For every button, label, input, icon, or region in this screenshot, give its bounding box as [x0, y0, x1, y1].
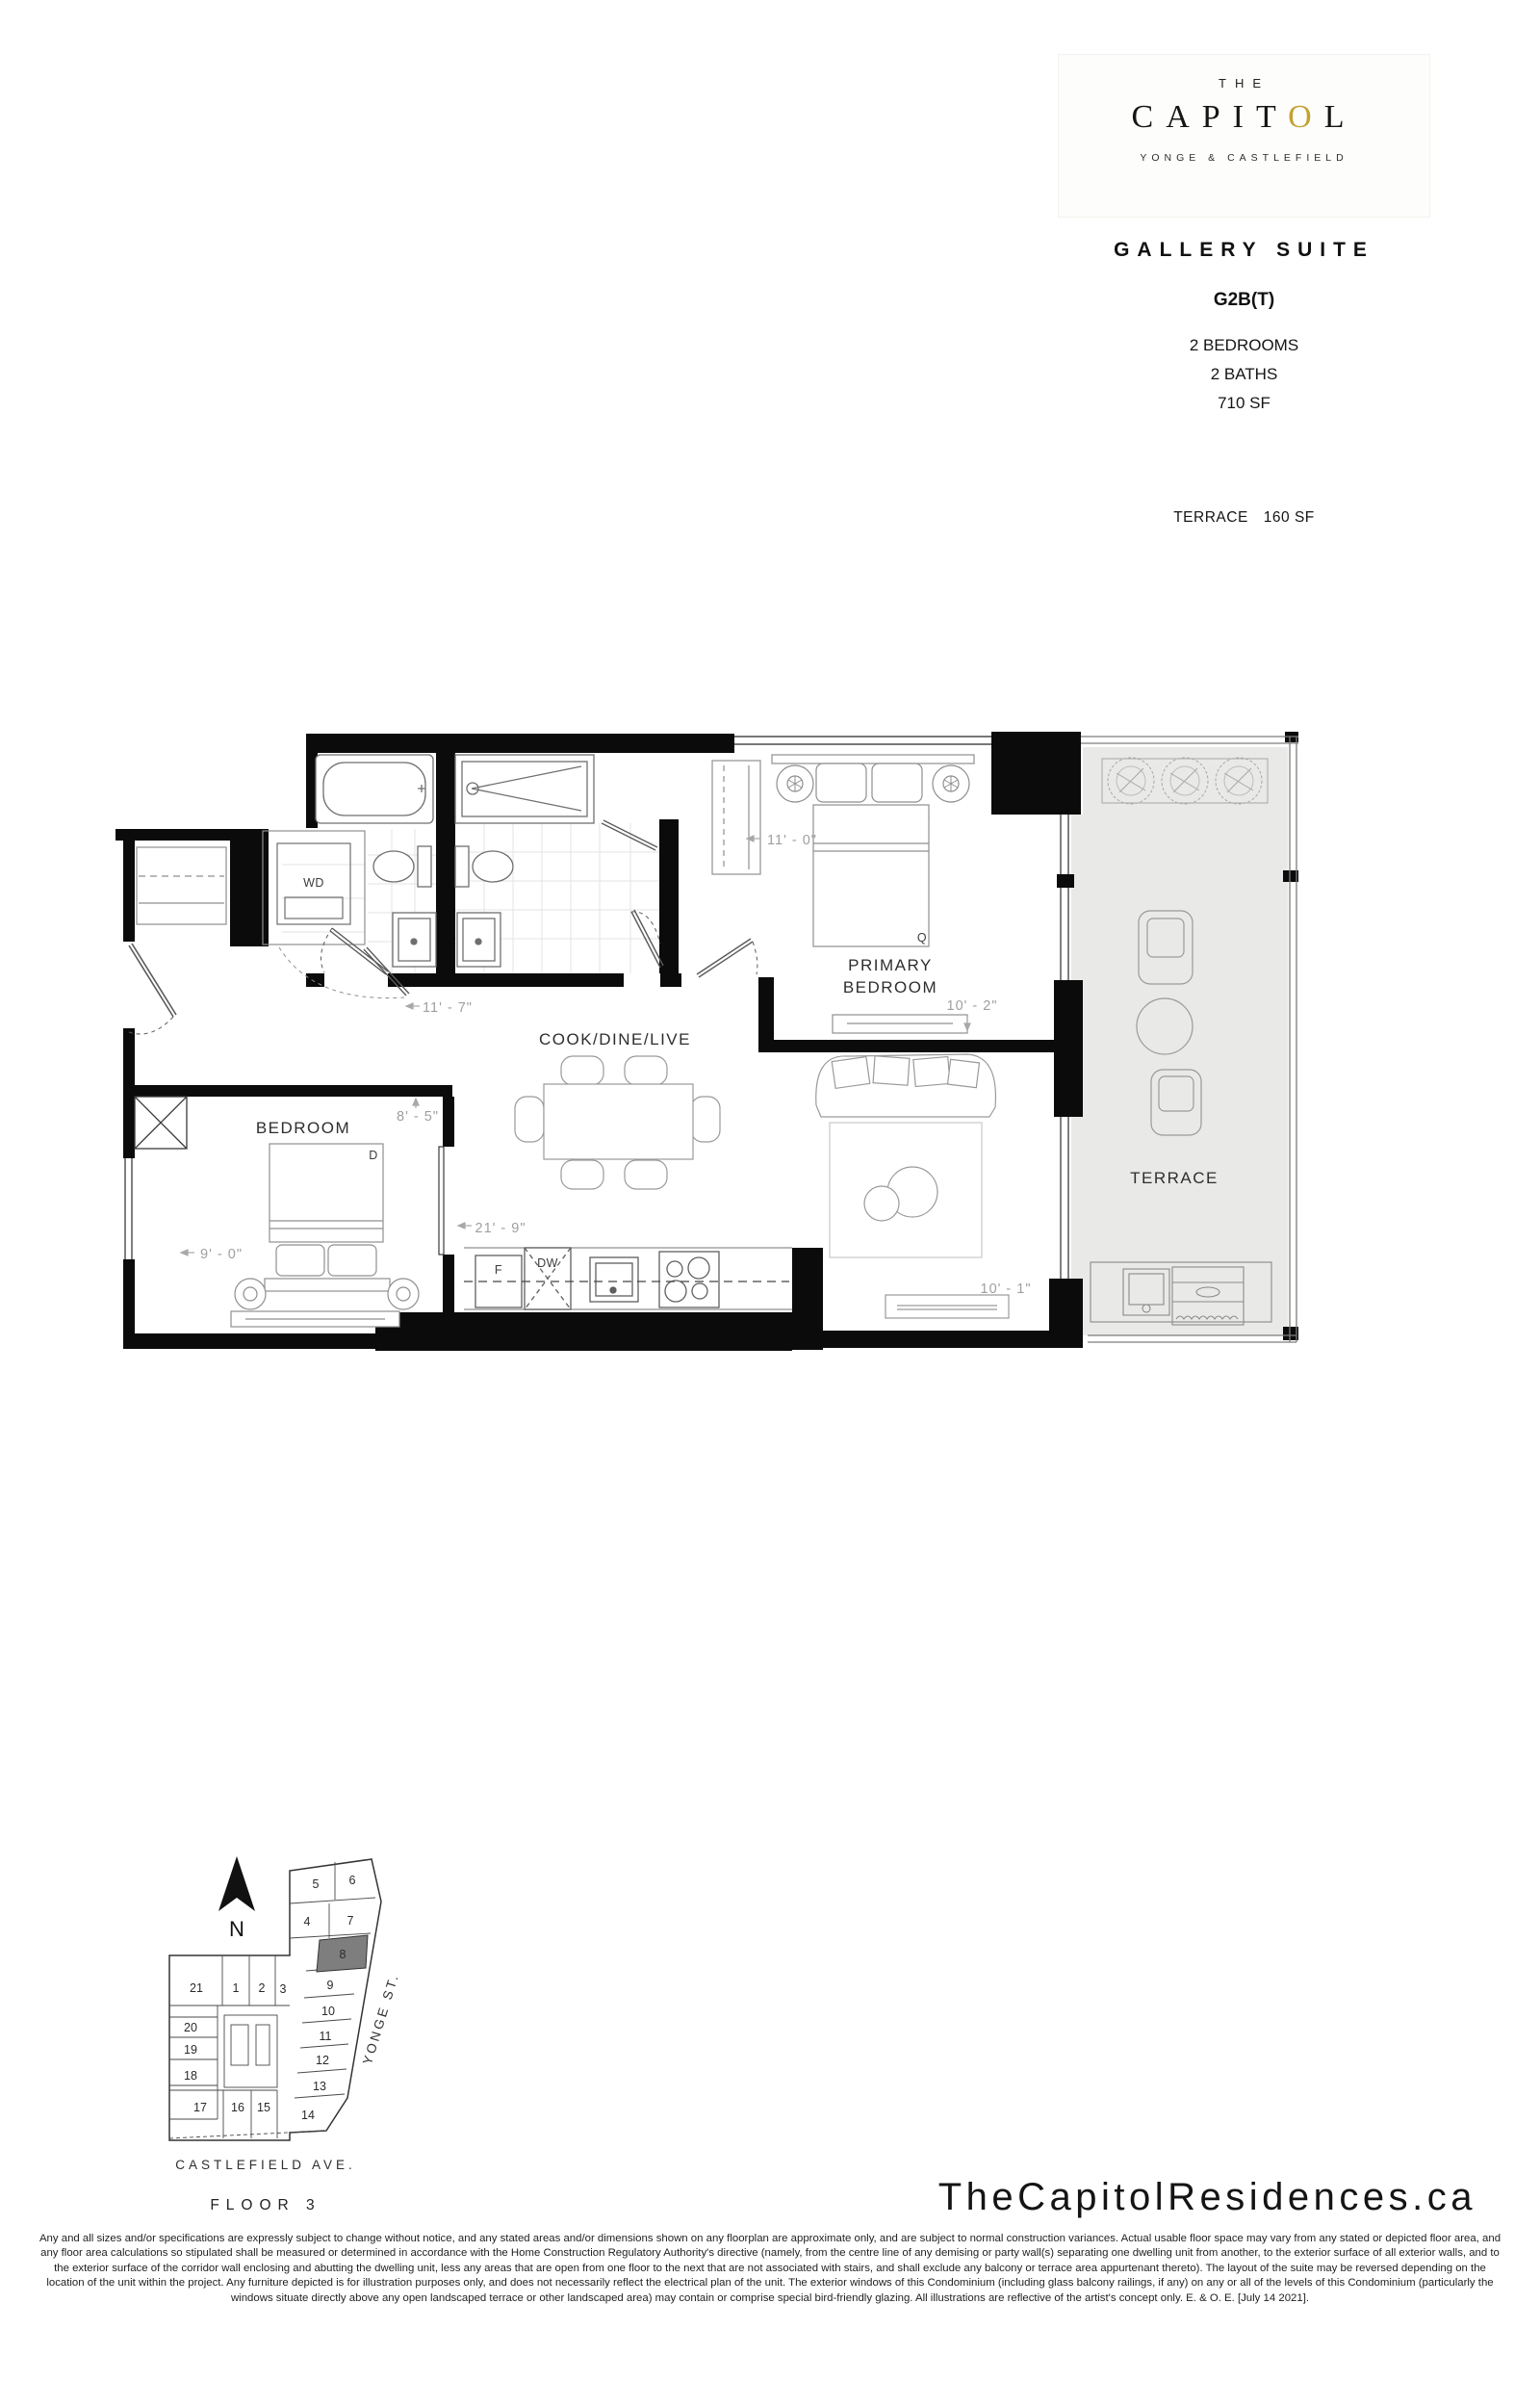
key-plan: N 5 6 4 7 8 9 10 11 12 13: [123, 1832, 454, 2221]
primary-bedroom-label-1: PRIMARY: [848, 956, 933, 974]
brand-wordmark-left: CAPIT: [1132, 99, 1289, 135]
terrace-floor: [1071, 747, 1288, 1335]
bedroom-label: BEDROOM: [256, 1119, 350, 1137]
toilet-icon-bath1: [373, 846, 431, 887]
legal-disclaimer: Any and all sizes and/or specifications …: [37, 2232, 1503, 2306]
unit-number: 19: [184, 2043, 197, 2057]
unit-number: 18: [184, 2069, 197, 2083]
terrace-room-label: TERRACE: [1130, 1169, 1219, 1187]
unit-number: 5: [313, 1877, 320, 1891]
unit-number: 20: [184, 2021, 197, 2034]
primary-bedroom-label-2: BEDROOM: [843, 978, 937, 996]
unit-number-highlighted: 8: [340, 1948, 346, 1961]
unit-number: 10: [321, 2005, 335, 2018]
suite-area: 710 SF: [1059, 389, 1429, 418]
unit-number: 2: [259, 1981, 266, 1995]
terrace-label: TERRACE: [1173, 509, 1248, 526]
dining-set-icon: [515, 1056, 720, 1189]
primary-closet: [712, 761, 760, 874]
suite-baths: 2 BATHS: [1059, 360, 1429, 389]
dim-bedroom-depth: 9' - 0": [200, 1247, 243, 1262]
entry-door: [129, 944, 176, 1034]
bedroom-sliding-door: [439, 1147, 444, 1255]
sofa-icon: [816, 1054, 1009, 1318]
unit-number: 13: [313, 2080, 326, 2093]
dim-main-length: 21' - 9": [475, 1221, 526, 1236]
entry-closet: [137, 847, 226, 924]
unit-number: 21: [190, 1981, 203, 1995]
unit-number: 17: [193, 2101, 207, 2114]
unit-number: 6: [349, 1874, 356, 1887]
terrace-area: 160 SF: [1264, 509, 1315, 526]
primary-door: [697, 939, 757, 977]
double-bed-label: D: [369, 1149, 378, 1162]
floor-plan: WD: [115, 720, 1328, 1360]
castlefield-ave-label: CASTLEFIELD AVE.: [175, 2158, 356, 2172]
unit-number: 9: [327, 1979, 334, 1992]
shaft-box: [135, 1097, 187, 1149]
suite-collection-title: GALLERY SUITE: [1059, 239, 1429, 262]
dim-living-width: 10' - 1": [981, 1281, 1032, 1297]
suite-bedrooms: 2 BEDROOMS: [1059, 331, 1429, 360]
unit-number: 16: [231, 2101, 244, 2114]
dishwasher-label: DW: [537, 1256, 558, 1270]
north-arrow-icon: N: [218, 1856, 255, 1941]
brand-gold-o-icon: O: [1288, 99, 1324, 135]
cook-dine-live-label: COOK/DINE/LIVE: [539, 1030, 691, 1048]
vanity-sink-icon-bath1: [393, 913, 436, 967]
unit-number: 14: [301, 2109, 315, 2122]
keyplan-partitions: [169, 1862, 375, 2138]
unit-number: 15: [257, 2101, 270, 2114]
website-url: TheCapitolResidences.ca: [938, 2176, 1476, 2219]
unit-number: 12: [316, 2054, 329, 2067]
north-label: N: [229, 1917, 244, 1941]
unit-number: 7: [347, 1914, 354, 1928]
floorplan-page: THE CAPITOL YONGE & CASTLEFIELD GALLERY …: [0, 0, 1540, 2381]
floor-label: FLOOR 3: [210, 2197, 321, 2213]
dim-primary-width: 11' - 0": [767, 833, 817, 848]
double-bed-icon: [231, 1144, 419, 1327]
wd-label: WD: [303, 876, 324, 890]
vanity-sink-icon-bath2: [457, 913, 500, 967]
floor-plan-svg: WD: [115, 720, 1328, 1360]
bath1-door: [321, 928, 388, 974]
key-plan-svg: N 5 6 4 7 8 9 10 11 12 13: [123, 1832, 454, 2221]
dim-bedroom-width: 8' - 5": [397, 1109, 439, 1125]
queen-bed-label: Q: [917, 931, 927, 945]
brand-logo-card: THE CAPITOL YONGE & CASTLEFIELD: [1059, 55, 1429, 217]
suite-specs: 2 BEDROOMS 2 BATHS 710 SF: [1059, 331, 1429, 418]
keyplan-unit-numbers: 5 6 4 7 8 9 10 11 12 13 14 21 1 2 3 20 1…: [184, 1874, 355, 2122]
brand-wordmark: CAPITOL: [1059, 99, 1429, 136]
suite-model: G2B(T): [1059, 290, 1429, 311]
kitchen: [464, 1248, 792, 1309]
dim-primary-depth: 10' - 2": [947, 998, 998, 1014]
bathtub-icon: [316, 755, 433, 823]
unit-number: 4: [304, 1915, 311, 1928]
unit-number: 1: [233, 1981, 240, 1995]
unit-number: 11: [320, 2030, 332, 2043]
unit-number: 3: [280, 1982, 287, 1996]
fridge-label: F: [495, 1263, 502, 1277]
brand-tagline: YONGE & CASTLEFIELD: [1059, 152, 1429, 164]
brand-wordmark-right: L: [1324, 99, 1357, 135]
suite-terrace-spec: TERRACE160 SF: [1059, 509, 1429, 527]
shower-icon: [455, 755, 657, 850]
dim-bath-hall: 11' - 7": [423, 1000, 473, 1016]
brand-the: THE: [1059, 76, 1429, 91]
